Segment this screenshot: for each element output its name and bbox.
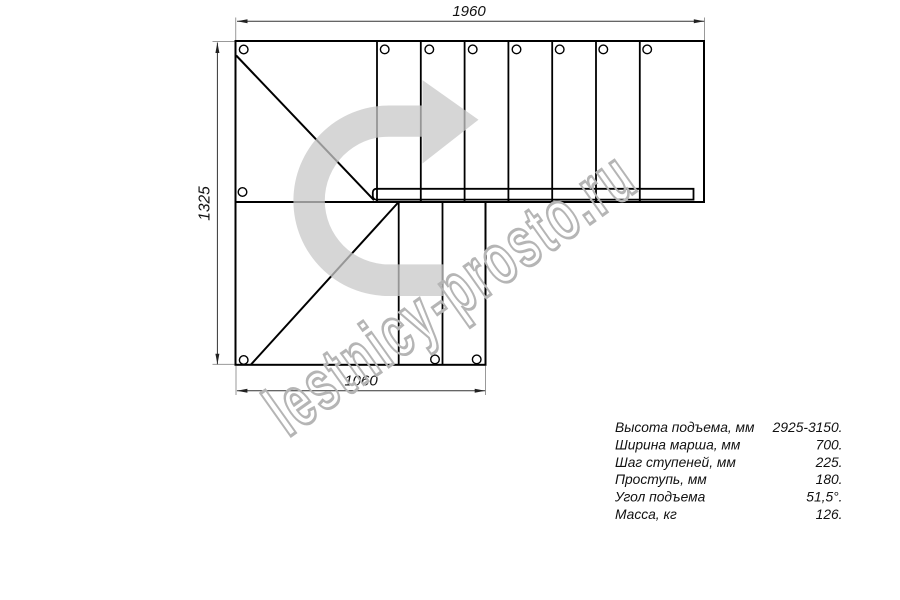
- svg-text:180.: 180.: [816, 472, 843, 487]
- svg-text:Высота подъема, мм: Высота подъема, мм: [615, 420, 755, 435]
- svg-text:Масса, кг: Масса, кг: [615, 507, 677, 522]
- svg-text:Проступь, мм: Проступь, мм: [615, 472, 707, 487]
- svg-text:Ширина марша, мм: Ширина марша, мм: [615, 438, 741, 453]
- svg-text:700.: 700.: [816, 438, 843, 453]
- svg-text:225.: 225.: [815, 455, 843, 470]
- svg-text:126.: 126.: [816, 507, 843, 522]
- svg-text:1960: 1960: [452, 3, 486, 20]
- svg-text:2925-3150.: 2925-3150.: [772, 420, 843, 435]
- svg-text:51,5°.: 51,5°.: [806, 490, 842, 505]
- svg-text:Шаг ступеней, мм: Шаг ступеней, мм: [615, 455, 736, 470]
- svg-text:Угол подъема: Угол подъема: [614, 490, 706, 505]
- svg-text:1325: 1325: [197, 186, 214, 221]
